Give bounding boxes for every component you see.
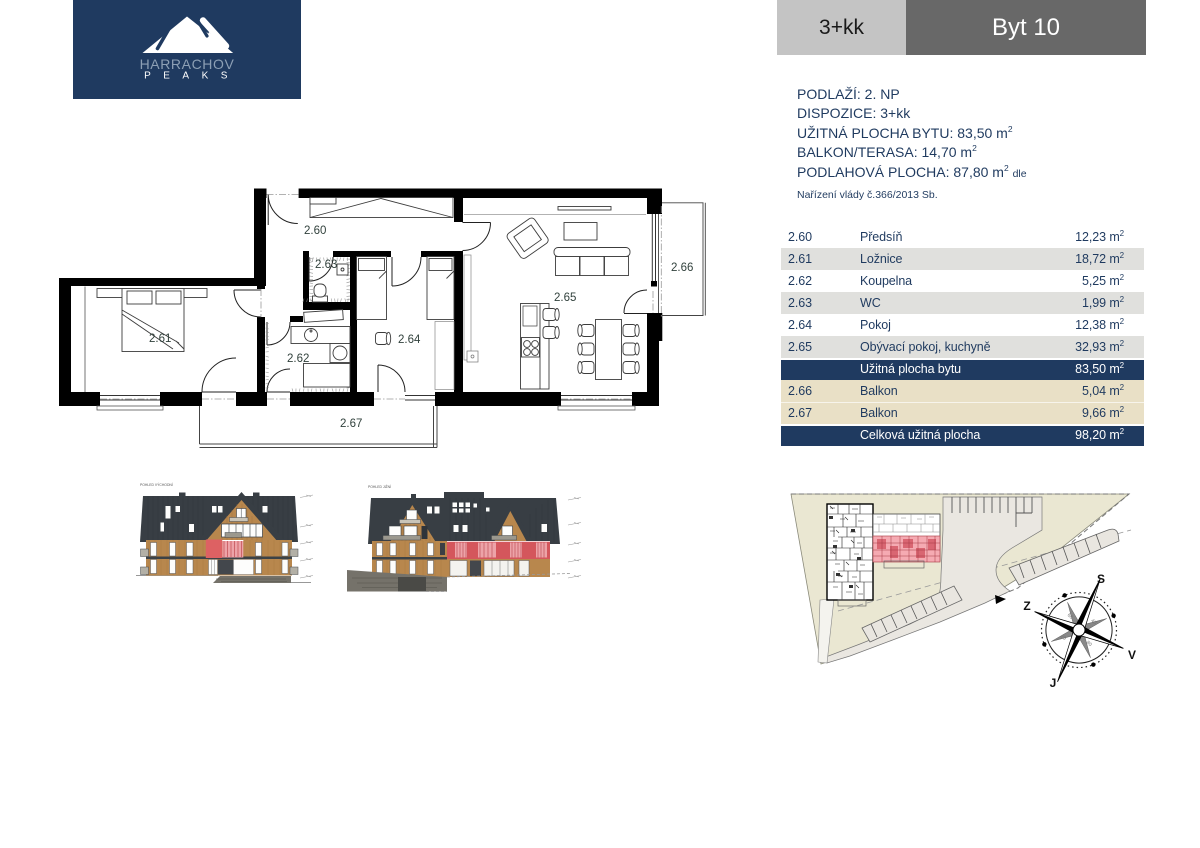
svg-text:J: J: [1050, 676, 1057, 690]
svg-text:2.65: 2.65: [554, 292, 576, 304]
svg-text:2.67: 2.67: [340, 418, 362, 430]
svg-text:2.62: 2.62: [287, 353, 309, 365]
svg-text:2.60: 2.60: [304, 225, 326, 237]
svg-text:Z: Z: [1023, 599, 1030, 613]
svg-text:2.63: 2.63: [315, 259, 337, 271]
svg-text:S: S: [1097, 572, 1105, 586]
svg-text:2.61: 2.61: [149, 333, 171, 345]
svg-text:2.64: 2.64: [398, 334, 421, 346]
svg-text:POHLED JIŽNÍ: POHLED JIŽNÍ: [368, 484, 391, 489]
svg-text:POHLED VÝCHODNÍ: POHLED VÝCHODNÍ: [140, 483, 173, 487]
svg-text:2.66: 2.66: [671, 262, 693, 274]
svg-text:V: V: [1128, 648, 1136, 662]
